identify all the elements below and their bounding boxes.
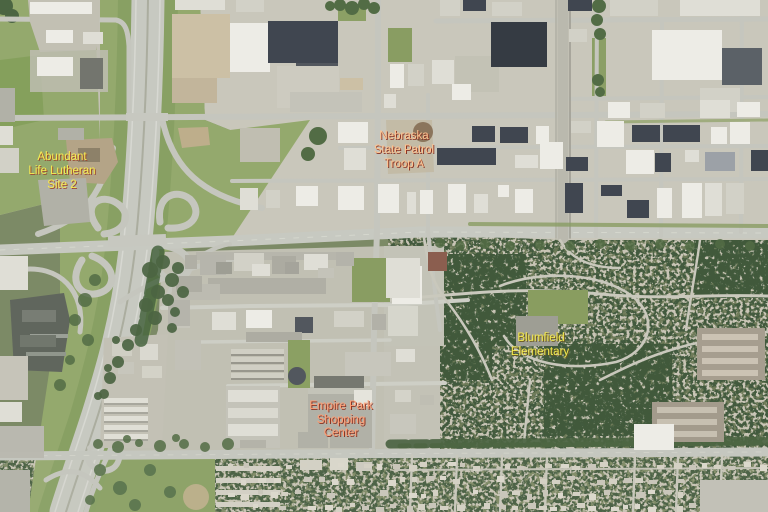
svg-text:Shopping: Shopping	[317, 414, 366, 426]
svg-text:Center: Center	[324, 427, 359, 439]
svg-text:Nebraska: Nebraska	[379, 130, 429, 142]
svg-text:Elementary: Elementary	[511, 346, 569, 358]
svg-text:Site 2: Site 2	[47, 179, 76, 191]
svg-text:Troop A: Troop A	[384, 158, 424, 170]
svg-text:Blumfield: Blumfield	[517, 332, 564, 344]
svg-text:Empire Park: Empire Park	[309, 400, 373, 412]
svg-text:Abundant: Abundant	[37, 151, 87, 163]
svg-text:Life Lutheran: Life Lutheran	[28, 165, 95, 177]
svg-text:State Patrol: State Patrol	[374, 144, 434, 156]
